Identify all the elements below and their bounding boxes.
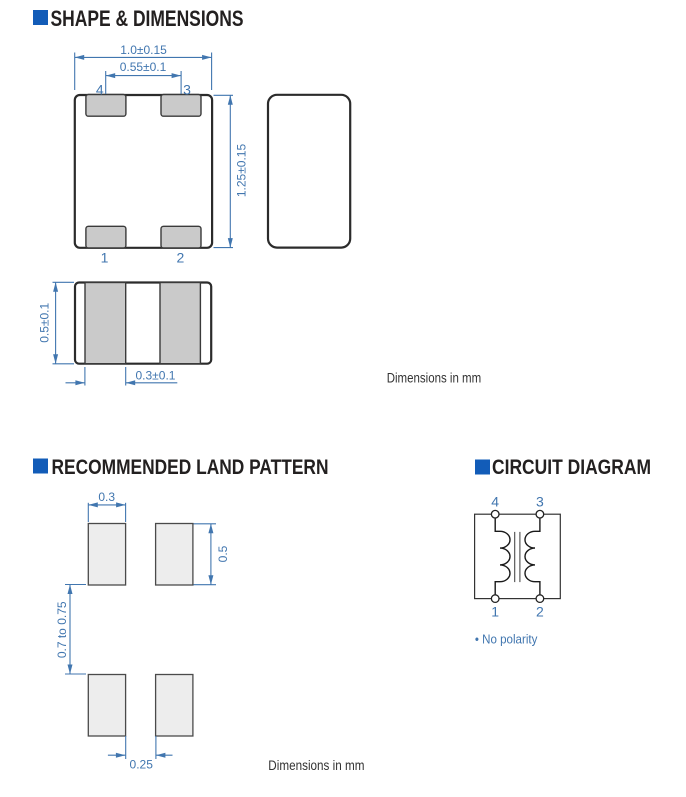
svg-text:2: 2 <box>177 250 185 266</box>
svg-text:1.0±0.15: 1.0±0.15 <box>120 43 167 57</box>
svg-text:0.5: 0.5 <box>216 545 230 562</box>
svg-text:Dimensions in mm: Dimensions in mm <box>387 369 482 385</box>
svg-text:4: 4 <box>491 494 499 510</box>
svg-text:1: 1 <box>491 604 499 620</box>
svg-text:1: 1 <box>101 250 109 266</box>
svg-text:0.25: 0.25 <box>130 758 154 772</box>
svg-text:Dimensions in mm: Dimensions in mm <box>268 757 364 773</box>
svg-text:0.3: 0.3 <box>98 490 115 504</box>
svg-text:2: 2 <box>536 604 544 620</box>
svg-text:4: 4 <box>96 81 104 97</box>
svg-text:3: 3 <box>536 494 544 510</box>
svg-text:0.55±0.1: 0.55±0.1 <box>120 60 167 74</box>
svg-text:3: 3 <box>183 81 191 97</box>
svg-text:0.5±0.1: 0.5±0.1 <box>38 303 52 343</box>
svg-text:SHAPE & DIMENSIONS: SHAPE & DIMENSIONS <box>51 6 244 31</box>
svg-text:• No polarity: • No polarity <box>475 632 538 647</box>
svg-text:1.25±0.15: 1.25±0.15 <box>235 144 249 198</box>
svg-text:0.3±0.1: 0.3±0.1 <box>136 368 176 382</box>
svg-text:RECOMMENDED LAND PATTERN: RECOMMENDED LAND PATTERN <box>52 456 329 479</box>
svg-text:0.7 to 0.75: 0.7 to 0.75 <box>55 601 69 658</box>
svg-text:CIRCUIT DIAGRAM: CIRCUIT DIAGRAM <box>492 456 651 479</box>
